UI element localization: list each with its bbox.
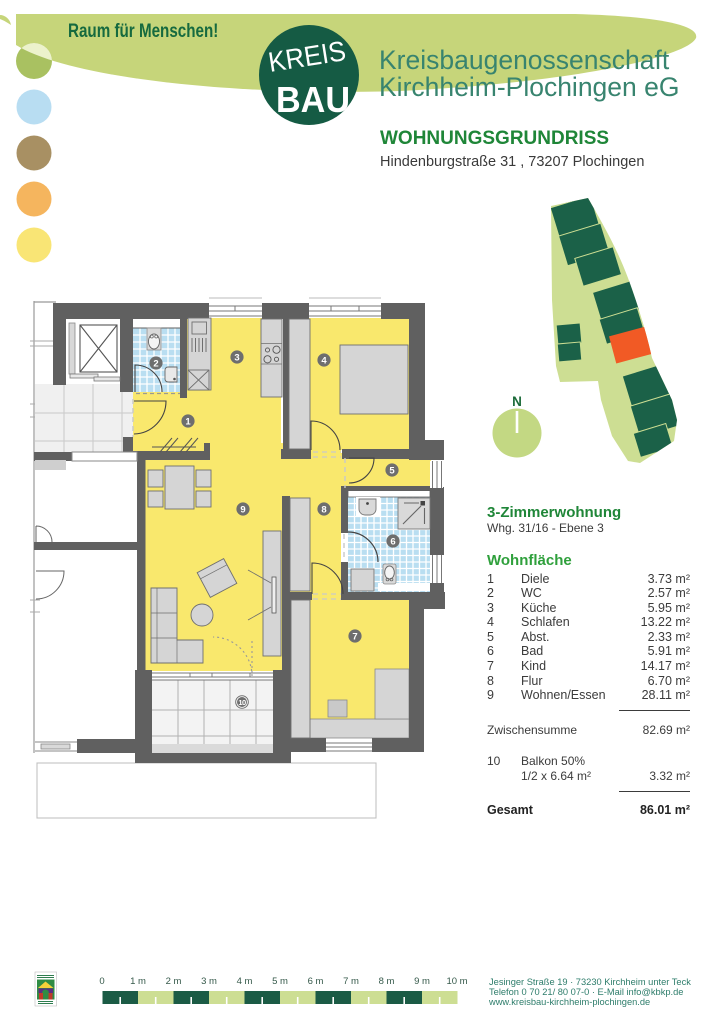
svg-text:1: 1	[185, 416, 191, 427]
svg-text:10: 10	[238, 698, 246, 707]
svg-text:4: 4	[321, 355, 327, 366]
svg-text:4 m: 4 m	[237, 976, 253, 987]
svg-text:6 m: 6 m	[308, 976, 324, 987]
svg-text:9 m: 9 m	[414, 976, 430, 987]
svg-text:5 m: 5 m	[272, 976, 288, 987]
svg-text:3: 3	[234, 352, 239, 363]
svg-text:10 m: 10 m	[446, 976, 467, 987]
svg-text:5: 5	[389, 465, 395, 476]
svg-text:9: 9	[240, 504, 245, 515]
svg-text:8: 8	[321, 504, 326, 515]
svg-text:2: 2	[153, 358, 158, 369]
svg-text:7: 7	[352, 631, 357, 642]
svg-text:2 m: 2 m	[166, 976, 182, 987]
svg-text:0: 0	[99, 976, 104, 987]
svg-text:8 m: 8 m	[379, 976, 395, 987]
svg-text:N: N	[512, 394, 522, 409]
svg-text:6: 6	[390, 536, 395, 547]
svg-text:7 m: 7 m	[343, 976, 359, 987]
svg-text:3 m: 3 m	[201, 976, 217, 987]
svg-text:1 m: 1 m	[130, 976, 146, 987]
